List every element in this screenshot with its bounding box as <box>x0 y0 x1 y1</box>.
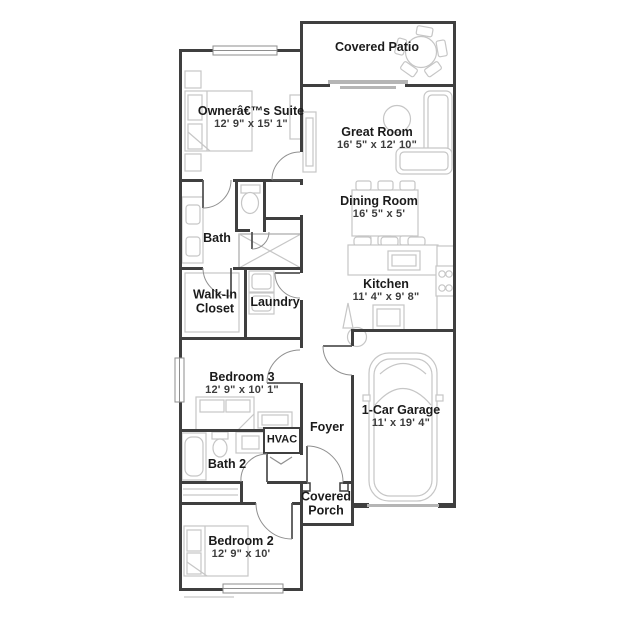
room-dims: 12' 9" x 10' <box>208 549 273 562</box>
hvac-label: HVAC <box>267 434 297 447</box>
room-name: Bath 2 <box>208 457 246 471</box>
owners-suite-label: Ownerâ€™s Suite 12' 9" x 15' 1" <box>198 104 304 132</box>
garage-door-icon <box>367 504 439 507</box>
garage-entry-door <box>323 346 352 375</box>
kitchen-label: Kitchen 11' 4" x 9' 8" <box>353 277 420 305</box>
floor-plan: Covered Patio Ownerâ€™s Suite 12' 9" x 1… <box>0 0 640 640</box>
tv-console-icon <box>303 112 316 172</box>
covered-patio-label: Covered Patio <box>335 40 419 54</box>
bedroom3-label: Bedroom 3 12' 9" x 10' 1" <box>205 370 279 398</box>
laundry-label: Laundry <box>250 295 299 309</box>
bath2-vanity-icon <box>236 432 266 453</box>
foyer-label: Foyer <box>310 420 344 434</box>
room-name: Covered Porch <box>296 490 356 519</box>
room-dims: 12' 9" x 15' 1" <box>198 119 304 132</box>
room-name: Bath <box>203 231 231 245</box>
room-name: Great Room <box>337 125 417 139</box>
sliding-door-icon <box>328 80 408 89</box>
room-dims: 11' x 19' 4" <box>362 418 441 431</box>
stove-icon <box>436 266 454 296</box>
bedroom3-bed-icon <box>196 397 254 430</box>
dining-room-label: Dining Room 16' 5" x 5' <box>340 194 418 222</box>
doors <box>203 152 352 539</box>
floor-plan-drawing <box>0 0 640 640</box>
room-dims: 11' 4" x 9' 8" <box>353 292 420 305</box>
bedroom2-label: Bedroom 2 12' 9" x 10' <box>208 534 273 562</box>
pantry-door-icon <box>343 303 353 328</box>
great-room-label: Great Room 16' 5" x 12' 10" <box>337 125 417 153</box>
kitchen-island-icon <box>348 237 438 275</box>
toilet-icon <box>241 185 260 214</box>
room-dims: 12' 9" x 10' 1" <box>205 385 279 398</box>
garage-label: 1-Car Garage 11' x 19' 4" <box>362 403 441 431</box>
shower-icon <box>239 234 301 268</box>
room-dims: 16' 5" x 5' <box>340 209 418 222</box>
bedroom3-dresser-icon <box>258 412 292 428</box>
bath-vanity-icon <box>182 197 203 263</box>
room-name: Dining Room <box>340 194 418 208</box>
front-door <box>307 446 343 482</box>
owners-suite-door <box>272 152 300 180</box>
linen-shelf-icon <box>183 489 238 495</box>
room-name: Kitchen <box>353 277 420 291</box>
room-name: Covered Patio <box>335 40 419 54</box>
toilet2-icon <box>212 432 228 457</box>
room-name: Bedroom 3 <box>205 370 279 384</box>
bath-door <box>203 180 231 208</box>
refrigerator-icon <box>373 305 404 330</box>
room-name: 1-Car Garage <box>362 403 441 417</box>
room-name: HVAC <box>267 434 297 447</box>
room-name: Bedroom 2 <box>208 534 273 548</box>
room-name: Ownerâ€™s Suite <box>198 104 304 118</box>
bath2-label: Bath 2 <box>208 457 246 471</box>
room-dims: 16' 5" x 12' 10" <box>337 140 417 153</box>
room-name: Laundry <box>250 295 299 309</box>
bathtub-icon <box>182 433 206 480</box>
covered-porch-label: Covered Porch <box>296 490 356 519</box>
room-name: Foyer <box>310 420 344 434</box>
bath-label: Bath <box>203 231 231 245</box>
walk-in-closet-label: Walk-In Closet <box>185 288 245 317</box>
room-name: Walk-In Closet <box>185 288 245 317</box>
